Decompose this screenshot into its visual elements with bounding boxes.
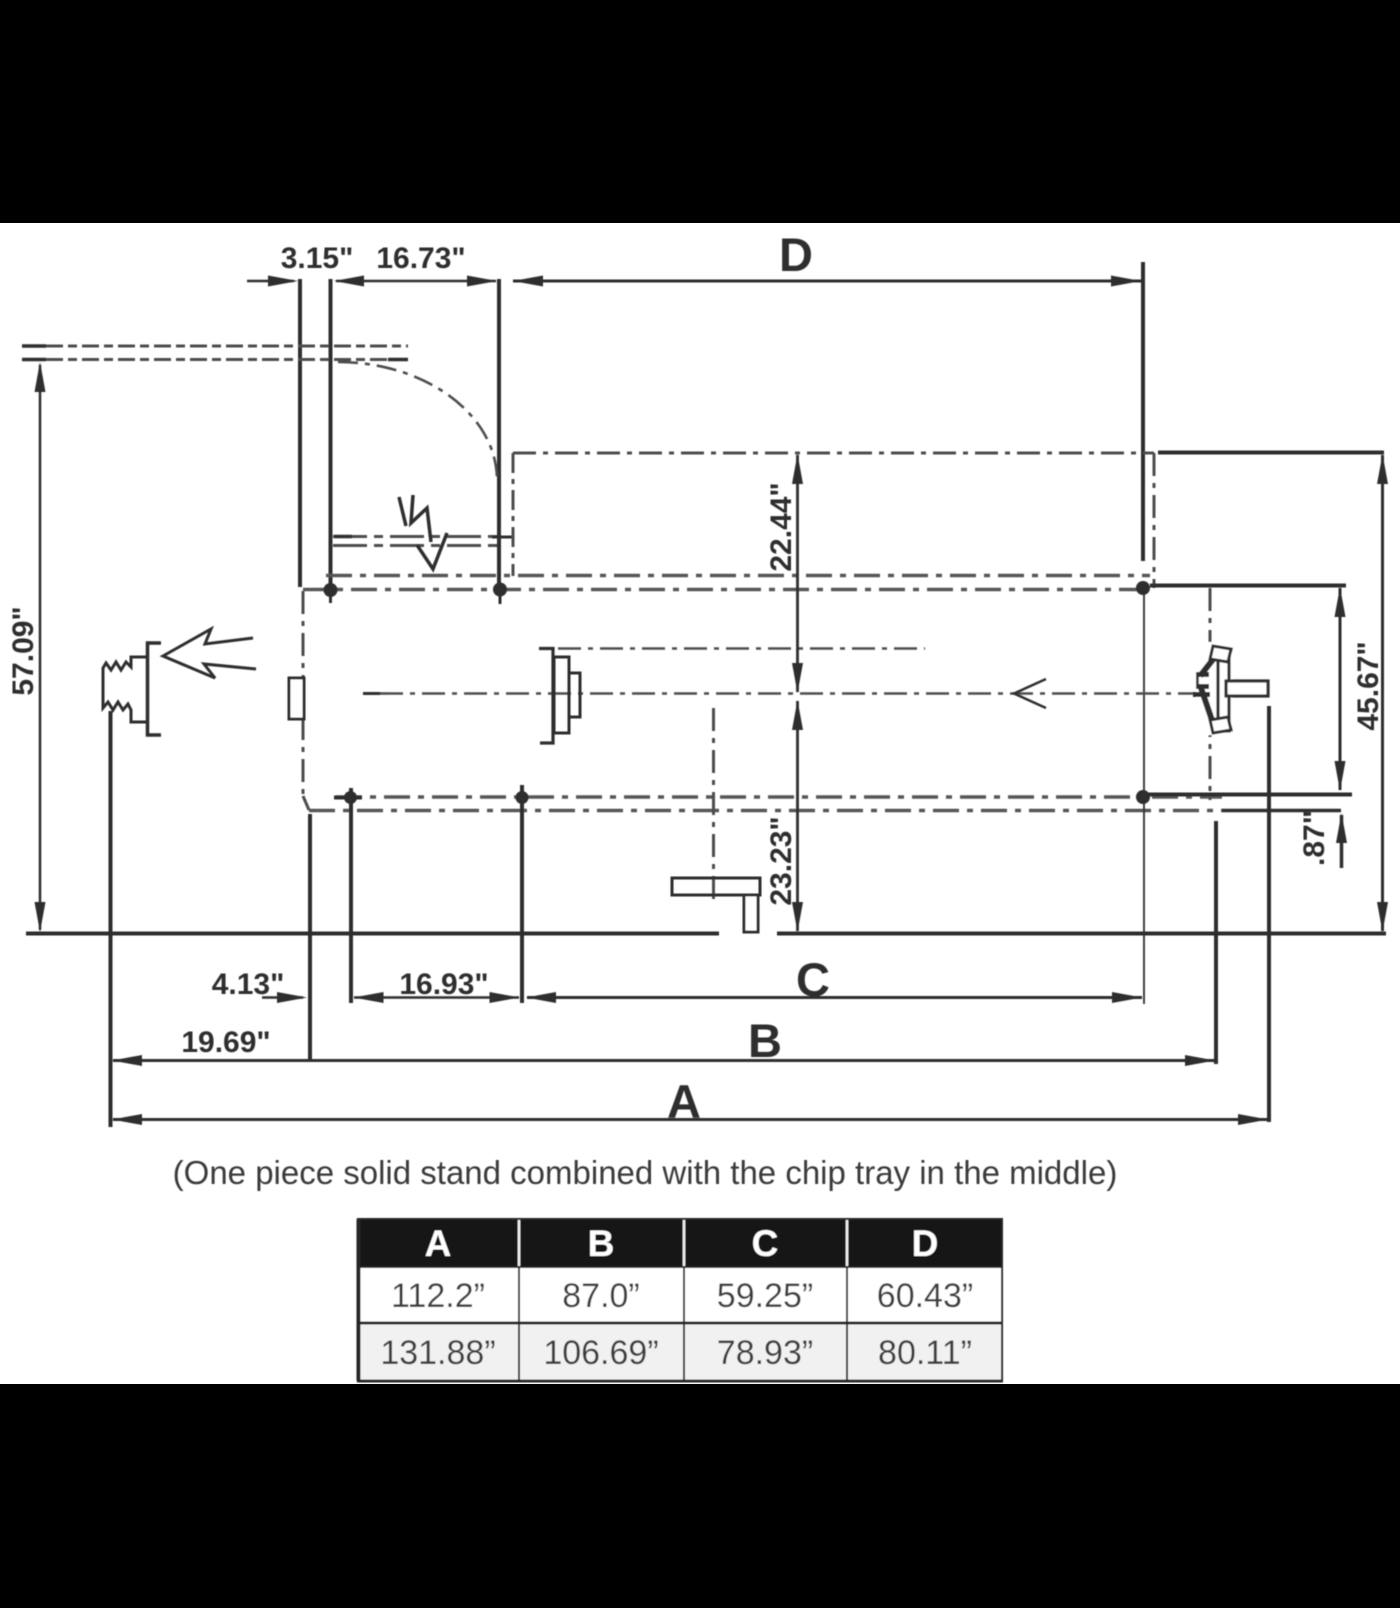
svg-text:57.09": 57.09" — [7, 606, 40, 695]
svg-text:A: A — [425, 1223, 452, 1264]
svg-text:23.23": 23.23" — [765, 816, 798, 905]
svg-text:16.93": 16.93" — [399, 968, 488, 1001]
svg-text:80.11”: 80.11” — [878, 1334, 972, 1372]
svg-text:.87": .87" — [1298, 810, 1331, 866]
svg-text:19.69": 19.69" — [181, 1026, 270, 1059]
svg-text:59.25”: 59.25” — [717, 1277, 813, 1315]
svg-text:16.73": 16.73" — [376, 242, 465, 275]
svg-text:106.69”: 106.69” — [543, 1334, 658, 1372]
svg-text:78.93”: 78.93” — [717, 1334, 813, 1372]
svg-text:60.43”: 60.43” — [877, 1277, 973, 1315]
svg-text:C: C — [752, 1223, 779, 1264]
svg-text:A: A — [667, 1075, 701, 1128]
svg-text:131.88”: 131.88” — [380, 1334, 495, 1372]
svg-text:22.44": 22.44" — [765, 482, 798, 571]
svg-text:4.13": 4.13" — [212, 968, 285, 1001]
svg-text:87.0”: 87.0” — [562, 1277, 640, 1315]
svg-text:45.67": 45.67" — [1352, 641, 1385, 730]
svg-text:B: B — [588, 1223, 615, 1264]
svg-text:D: D — [912, 1223, 939, 1264]
svg-text:C: C — [796, 953, 830, 1006]
svg-text:(One piece solid stand combine: (One piece solid stand combined with the… — [173, 1154, 1118, 1191]
svg-text:112.2”: 112.2” — [391, 1277, 485, 1315]
svg-text:3.15": 3.15" — [281, 242, 354, 275]
svg-text:D: D — [779, 228, 813, 281]
svg-text:B: B — [748, 1014, 782, 1067]
